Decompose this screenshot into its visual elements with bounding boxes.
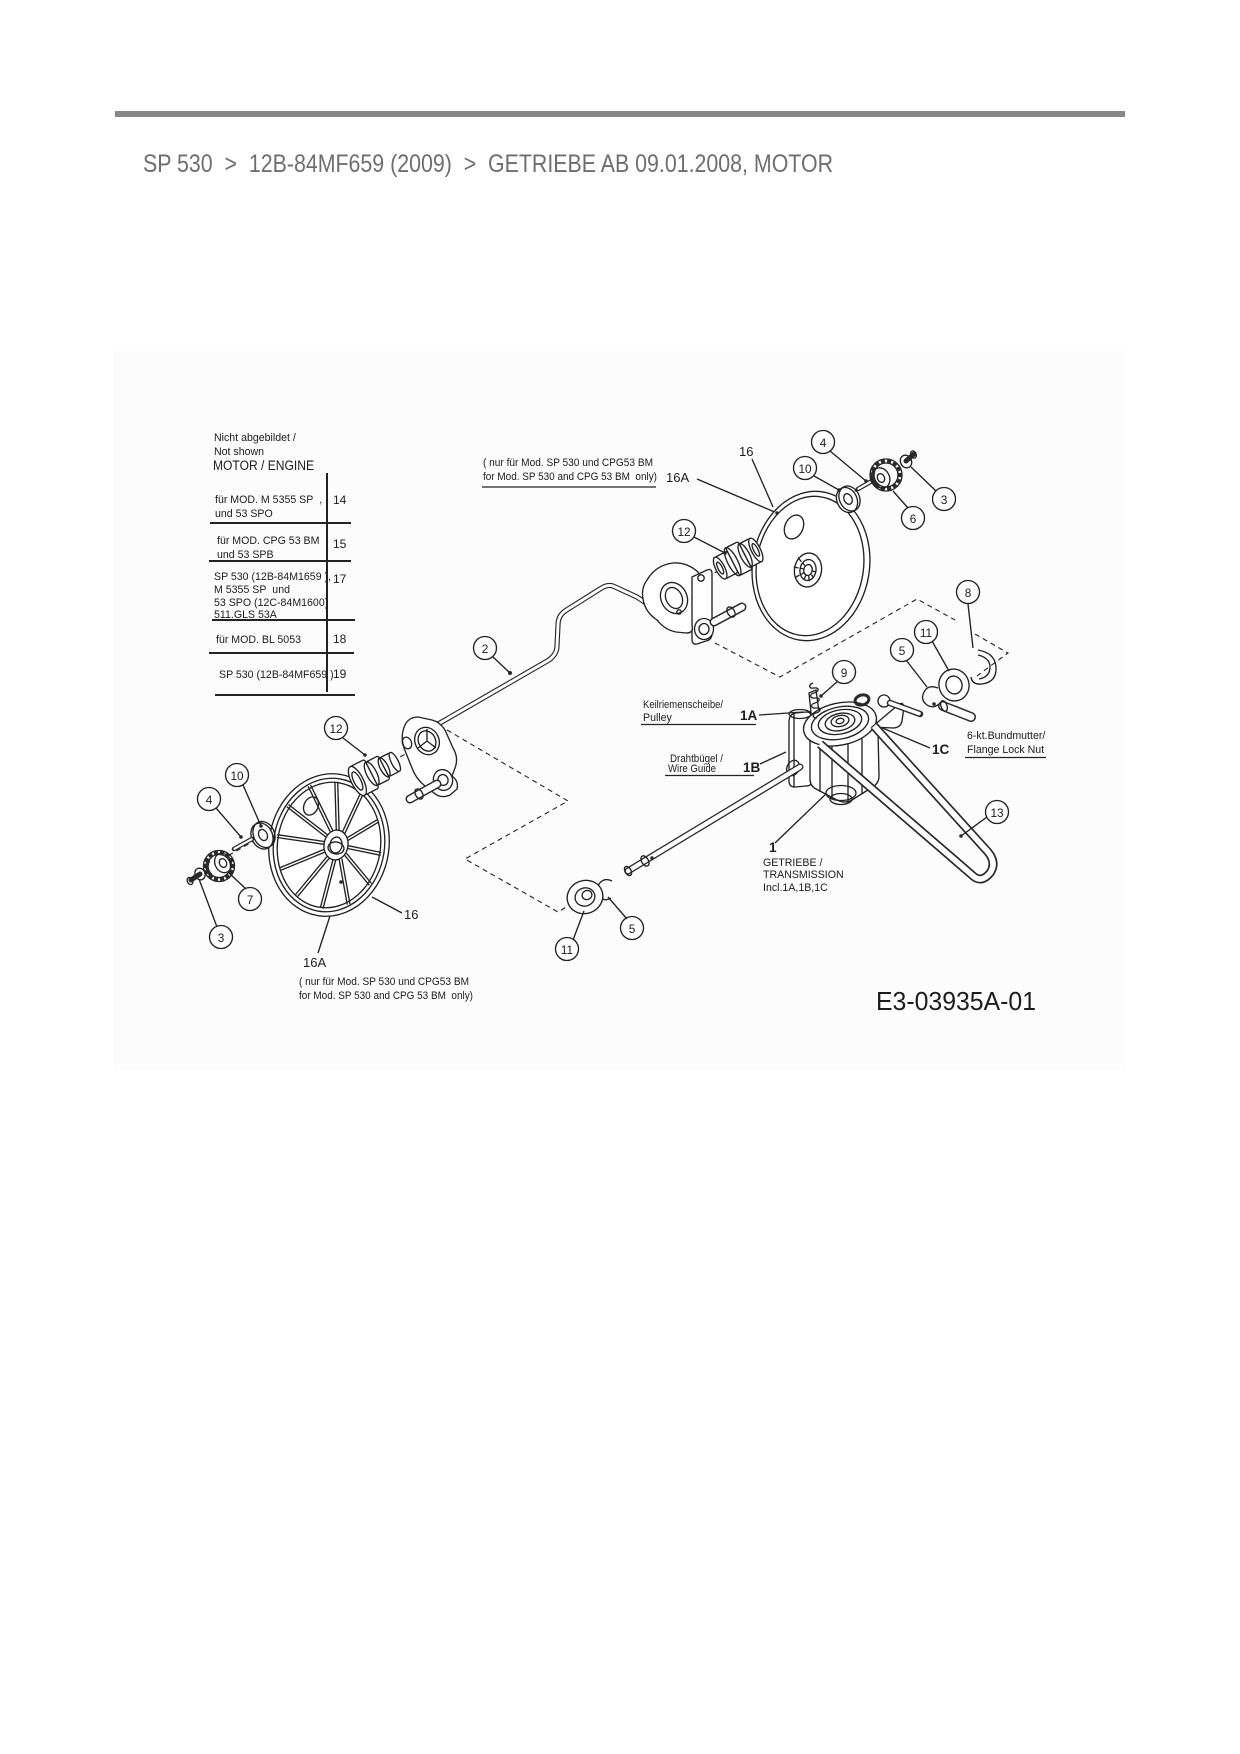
svg-text:1C: 1C xyxy=(932,742,950,757)
svg-text:4: 4 xyxy=(206,793,213,807)
svg-text:2: 2 xyxy=(482,642,489,656)
svg-text:12: 12 xyxy=(329,722,342,736)
svg-text:Wire Guide: Wire Guide xyxy=(668,763,716,775)
svg-text:14: 14 xyxy=(333,493,347,507)
svg-text:8: 8 xyxy=(965,586,972,600)
svg-text:für MOD. M 5355 SP ,: für MOD. M 5355 SP , xyxy=(215,494,322,506)
svg-text:für MOD. BL 5053: für MOD. BL 5053 xyxy=(216,634,301,646)
svg-text:for Mod. SP 530 and CPG 53 BM: for Mod. SP 530 and CPG 53 BM only) xyxy=(299,990,473,1002)
svg-text:for Mod. SP 530 and CPG 53 BM: for Mod. SP 530 and CPG 53 BM only) xyxy=(483,471,657,483)
svg-text:16A: 16A xyxy=(666,470,689,485)
svg-text:3: 3 xyxy=(941,493,948,507)
svg-text:19: 19 xyxy=(333,667,347,681)
svg-text:1A: 1A xyxy=(740,708,758,723)
svg-text:Nicht abgebildet /: Nicht abgebildet / xyxy=(214,432,296,444)
svg-text:Incl.1A,1B,1C: Incl.1A,1B,1C xyxy=(763,882,828,894)
svg-text:11: 11 xyxy=(920,626,932,640)
svg-text:5: 5 xyxy=(899,644,906,658)
svg-text:6: 6 xyxy=(910,512,917,526)
svg-text:16: 16 xyxy=(404,907,418,922)
svg-text:9: 9 xyxy=(841,666,848,680)
svg-text:15: 15 xyxy=(333,537,347,551)
svg-text:6-kt.Bundmutter/: 6-kt.Bundmutter/ xyxy=(967,730,1045,742)
svg-text:1B: 1B xyxy=(743,760,761,775)
svg-text:E3-03935A-01: E3-03935A-01 xyxy=(876,986,1036,1016)
svg-text:13: 13 xyxy=(990,806,1004,820)
svg-text:16A: 16A xyxy=(303,955,326,970)
svg-text:10: 10 xyxy=(230,769,244,783)
svg-text:11: 11 xyxy=(561,943,573,957)
svg-text:für MOD. CPG 53 BM: für MOD. CPG 53 BM xyxy=(217,535,319,547)
svg-text:7: 7 xyxy=(247,893,254,907)
svg-text:Flange Lock Nut: Flange Lock Nut xyxy=(967,744,1044,756)
svg-text:M 5355 SP und: M 5355 SP und xyxy=(214,584,290,596)
svg-text:Keilriemenscheibe/: Keilriemenscheibe/ xyxy=(643,699,723,711)
svg-text:12: 12 xyxy=(677,525,690,539)
svg-text:SP 530 > 12B-84MF659 (2009): SP 530 > 12B-84MF659 (2009) > GETRIEBE A… xyxy=(143,150,833,178)
svg-text:MOTOR / ENGINE: MOTOR / ENGINE xyxy=(213,458,314,473)
svg-text:16: 16 xyxy=(739,444,753,459)
svg-text:4: 4 xyxy=(820,436,827,450)
svg-text:SP 530 (12B-84M1659 ),: SP 530 (12B-84M1659 ), xyxy=(214,571,331,583)
svg-text:Not shown: Not shown xyxy=(214,446,264,458)
svg-text:18: 18 xyxy=(333,632,347,646)
svg-text:und 53 SPB: und 53 SPB xyxy=(217,549,274,561)
svg-text:GETRIEBE /: GETRIEBE / xyxy=(763,857,823,869)
svg-text:53 SPO (12C-84M1600): 53 SPO (12C-84M1600) xyxy=(214,597,328,609)
svg-text:TRANSMISSION: TRANSMISSION xyxy=(763,869,844,881)
svg-text:Pulley: Pulley xyxy=(643,712,673,724)
svg-text:10: 10 xyxy=(798,462,812,476)
svg-text:( nur für Mod. SP 530 und CPG5: ( nur für Mod. SP 530 und CPG53 BM xyxy=(483,457,653,469)
svg-text:5: 5 xyxy=(629,922,636,936)
svg-text:( nur für Mod. SP 530 und CPG5: ( nur für Mod. SP 530 und CPG53 BM xyxy=(299,976,469,988)
svg-text:und 53 SPO: und 53 SPO xyxy=(215,508,273,520)
svg-text:3: 3 xyxy=(218,931,225,945)
svg-text:SP 530 (12B-84MF659 ): SP 530 (12B-84MF659 ) xyxy=(219,669,334,681)
svg-text:17: 17 xyxy=(333,572,347,586)
